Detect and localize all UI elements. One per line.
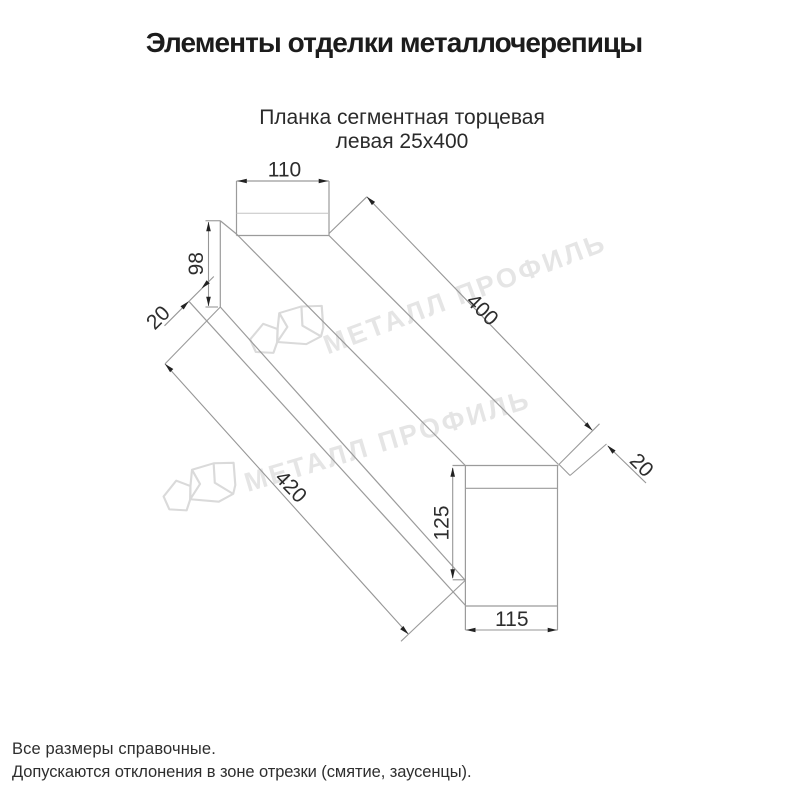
svg-text:110: 110 [268,159,301,182]
svg-text:20: 20 [142,301,175,334]
svg-text:98: 98 [185,252,208,275]
svg-text:115: 115 [495,608,528,631]
svg-text:125: 125 [431,505,454,540]
svg-text:20: 20 [625,449,658,482]
svg-text:МЕТАЛЛ ПРОФИЛЬ: МЕТАЛЛ ПРОФИЛЬ [319,227,610,360]
